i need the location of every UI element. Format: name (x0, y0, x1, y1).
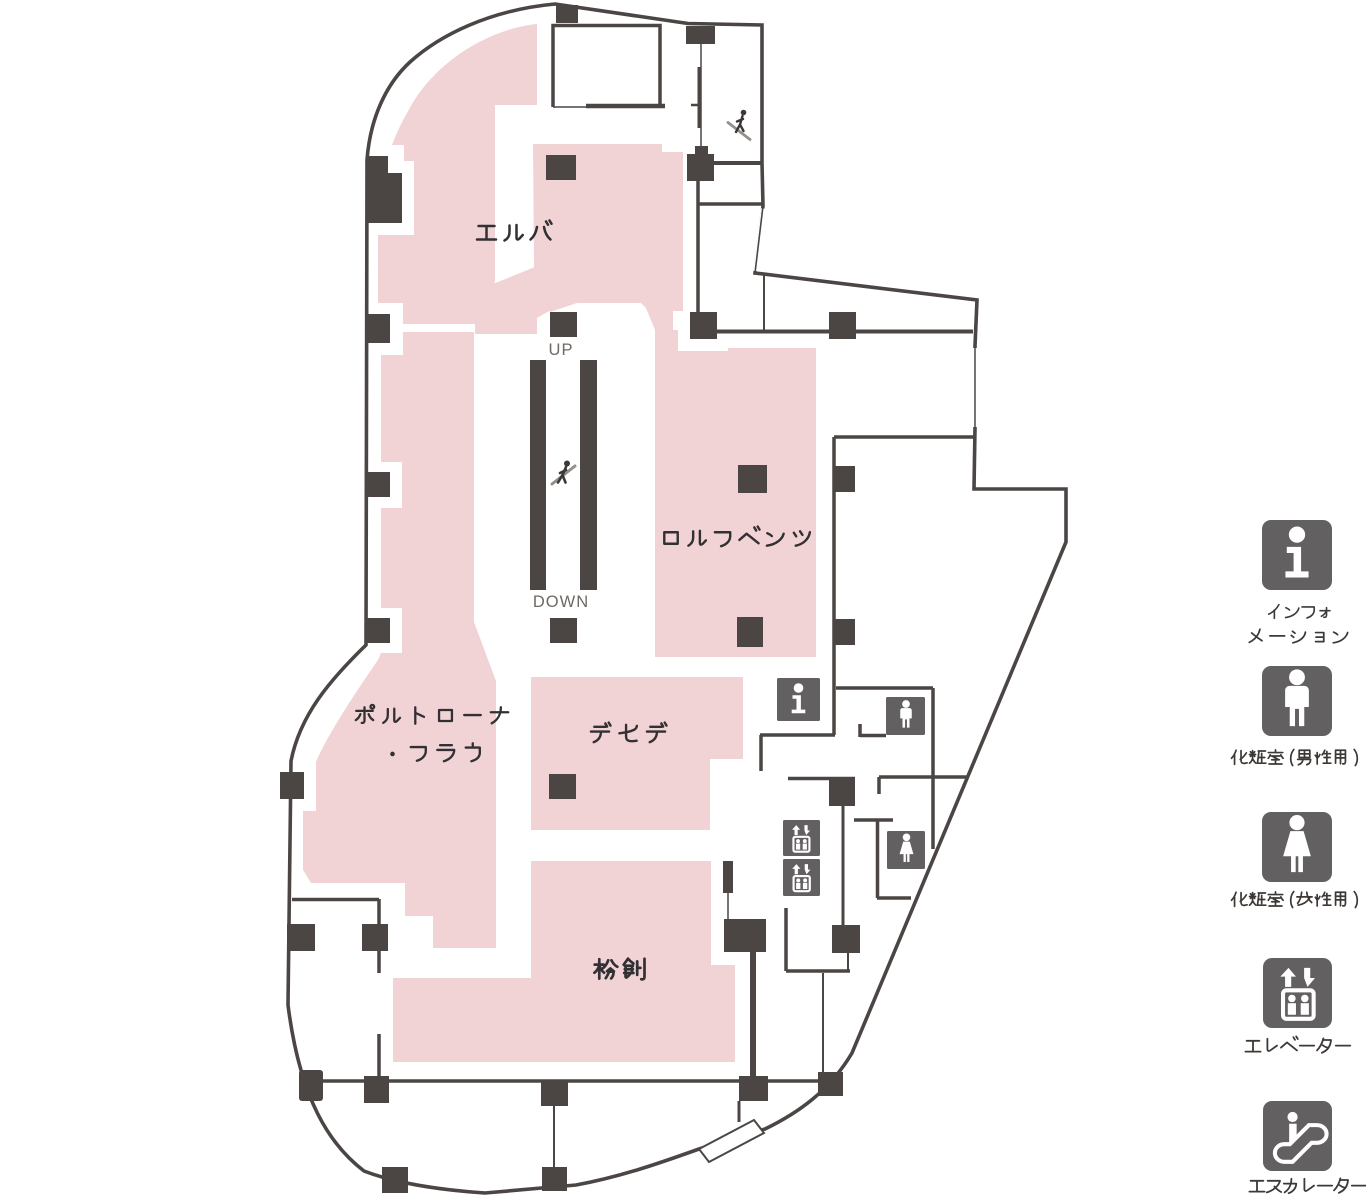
svg-text:DOWN: DOWN (533, 593, 589, 611)
svg-text:UP: UP (549, 341, 574, 359)
